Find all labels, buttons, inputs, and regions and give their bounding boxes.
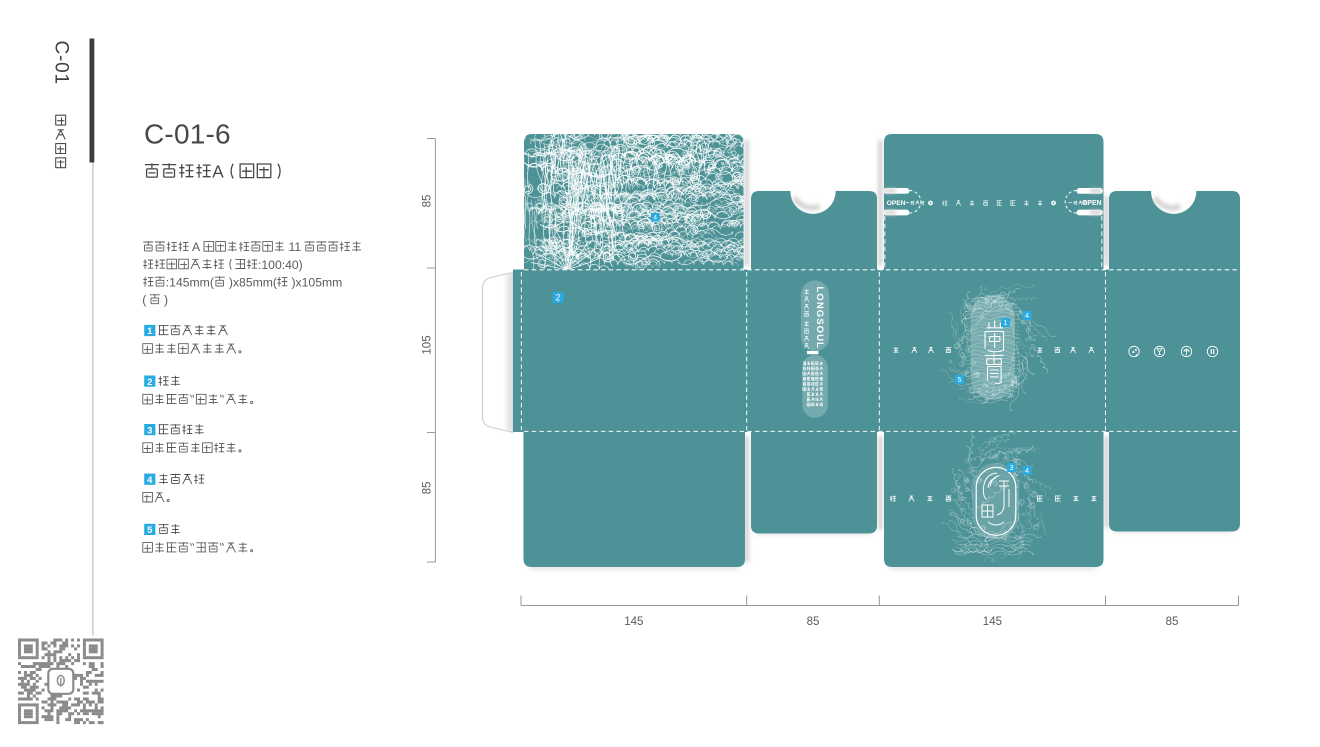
svg-text:A: A [189,240,203,254]
svg-text:1: 1 [147,326,153,337]
svg-text:85: 85 [1166,616,1179,628]
svg-text:4: 4 [147,475,153,486]
svg-text:C-01: C-01 [51,41,72,85]
svg-text:4: 4 [653,215,657,222]
svg-text:LONGSOUL: LONGSOUL [814,287,825,349]
svg-text::145mm(: :145mm( [166,275,217,289]
svg-text:C-01-6: C-01-6 [144,119,231,150]
svg-text:4: 4 [1025,311,1029,320]
svg-text:3: 3 [147,425,152,436]
svg-text:): ) [161,293,168,307]
svg-text:4: 4 [1025,466,1029,475]
svg-text:85: 85 [422,482,434,495]
svg-text:5: 5 [147,525,153,536]
svg-text:11: 11 [285,240,304,254]
svg-text:)x105mm: )x105mm [288,275,342,289]
svg-text:1: 1 [1004,318,1008,327]
svg-text:2: 2 [147,377,152,388]
svg-text:(: ( [142,293,149,307]
svg-text:2: 2 [556,293,561,303]
svg-text:105: 105 [422,335,434,354]
svg-text:OPEN: OPEN [887,200,906,207]
svg-text:3: 3 [1010,463,1014,472]
svg-text:85: 85 [807,616,820,628]
svg-text:5: 5 [958,375,962,384]
svg-text:85: 85 [422,195,434,208]
svg-text:A: A [212,162,224,182]
svg-text:145: 145 [624,616,643,628]
svg-text:145: 145 [983,616,1002,628]
svg-text:OPEN: OPEN [1082,200,1101,207]
svg-text:)x85mm(: )x85mm( [226,275,281,289]
svg-text::100:40): :100:40) [258,258,303,272]
